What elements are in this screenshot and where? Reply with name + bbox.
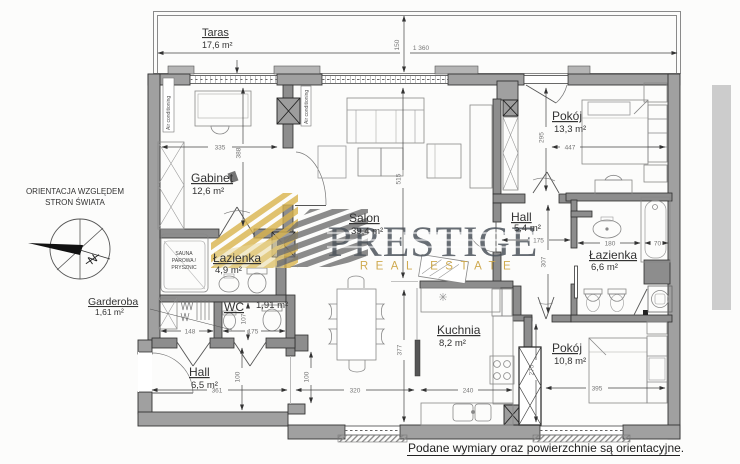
svg-text:388: 388 [236,147,243,158]
svg-text:6,5 m²: 6,5 m² [191,380,218,391]
svg-text:PRYSZNIC: PRYSZNIC [171,265,197,271]
svg-text:Salon: Salon [349,211,380,225]
svg-text:100: 100 [235,371,242,382]
svg-text:Kuchnia: Kuchnia [437,323,481,337]
svg-text:6,6 m²: 6,6 m² [591,262,618,273]
svg-text:1 360: 1 360 [413,45,430,52]
svg-text:240: 240 [463,388,474,395]
svg-text:PAROWA /: PAROWA / [172,258,197,264]
svg-text:Podane wymiary oraz powierzchn: Podane wymiary oraz powierzchnie są orie… [408,441,684,455]
svg-text:515: 515 [396,173,403,184]
svg-text:1,91 m²: 1,91 m² [256,300,288,311]
svg-text:SAUNA: SAUNA [175,251,193,257]
svg-text:Łazienka: Łazienka [589,248,637,262]
svg-text:Air conditioning: Air conditioning [304,90,310,124]
svg-text:ORIENTACJA WZGLĘDEM: ORIENTACJA WZGLĘDEM [26,187,124,196]
svg-text:Łazienka: Łazienka [213,251,261,265]
svg-text:107: 107 [241,313,248,324]
svg-text:1,61 m²: 1,61 m² [95,307,124,317]
svg-text:335: 335 [215,145,226,152]
svg-text:Hall: Hall [511,210,532,224]
svg-text:100: 100 [304,371,311,382]
svg-text:148: 148 [185,329,196,336]
svg-text:150: 150 [394,39,401,50]
svg-text:395: 395 [592,386,603,393]
svg-text:377: 377 [397,344,404,355]
svg-text:175: 175 [248,329,259,336]
svg-text:12,6 m²: 12,6 m² [192,186,224,197]
svg-text:Hall: Hall [189,365,210,379]
svg-text:Pokój: Pokój [552,109,582,123]
svg-text:295: 295 [539,132,546,143]
svg-text:180: 180 [605,241,616,248]
svg-text:447: 447 [565,145,576,152]
svg-text:320: 320 [350,388,361,395]
svg-text:5,4 m²: 5,4 m² [514,223,541,234]
svg-text:17,6 m²: 17,6 m² [202,40,233,50]
svg-text:70: 70 [654,241,662,248]
svg-text:4,9 m²: 4,9 m² [215,265,242,276]
svg-text:8,2 m²: 8,2 m² [439,338,466,349]
svg-text:Air conditioning: Air conditioning [166,96,172,130]
svg-text:Gabinet: Gabinet [191,171,234,185]
svg-text:13,3 m²: 13,3 m² [554,124,586,135]
svg-text:Taras: Taras [202,27,229,39]
svg-text:175: 175 [533,238,544,245]
svg-text:275: 275 [529,364,536,375]
svg-text:WC: WC [224,300,244,314]
svg-text:STRON ŚWIATA: STRON ŚWIATA [45,198,105,207]
svg-text:39,4 m²: 39,4 m² [351,226,383,237]
svg-text:Pokój: Pokój [552,341,582,355]
svg-text:REAL ESTATE: REAL ESTATE [360,261,518,273]
svg-text:307: 307 [541,256,548,267]
svg-text:10,8 m²: 10,8 m² [554,356,586,367]
